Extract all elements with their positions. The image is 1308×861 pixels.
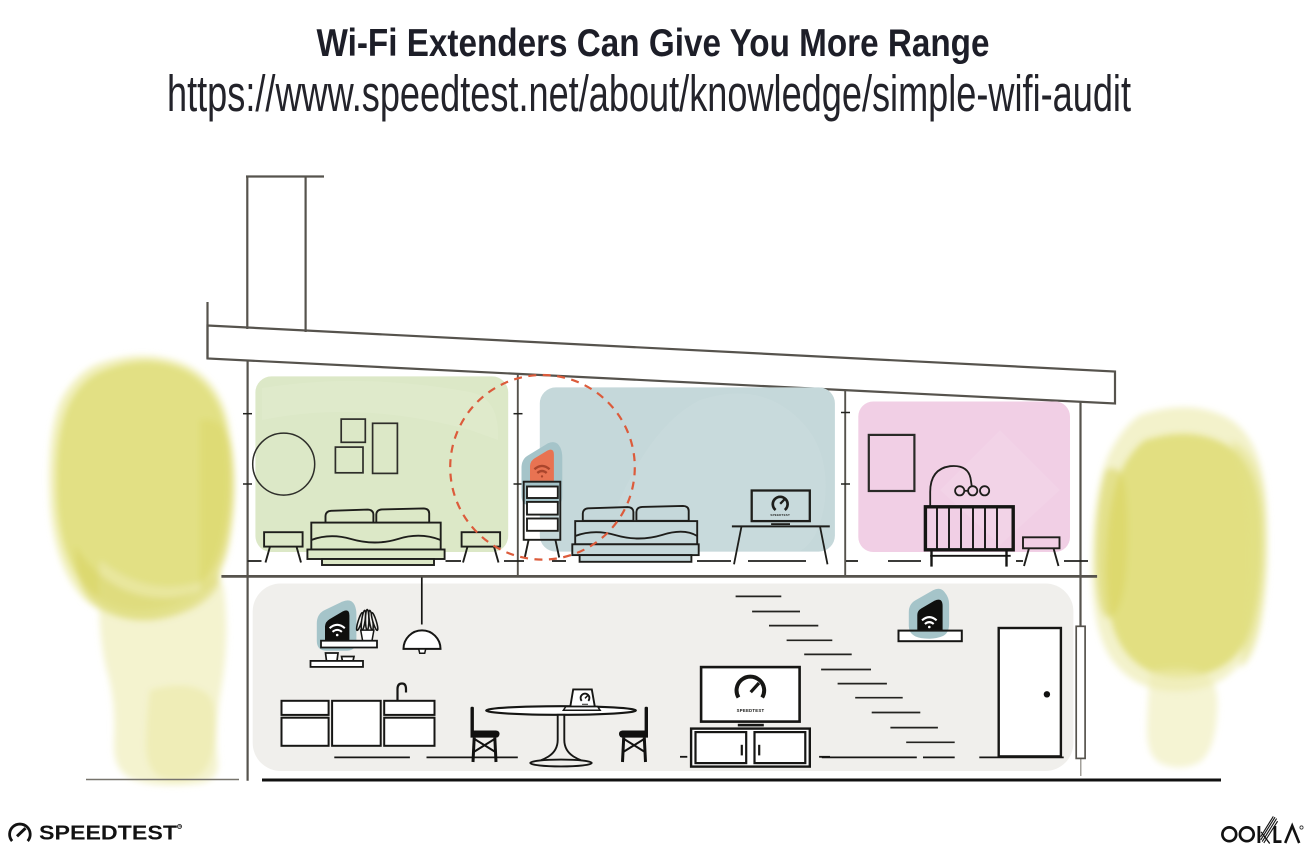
- svg-text:Wi-Fi Extenders Can Give You M: Wi-Fi Extenders Can Give You More Range: [317, 22, 990, 65]
- svg-text:SPEEDTEST: SPEEDTEST: [770, 513, 790, 517]
- svg-text:SPEEDTEST: SPEEDTEST: [737, 708, 765, 713]
- svg-text:SPEEDTEST: SPEEDTEST: [39, 823, 177, 845]
- svg-text:https://www.speedtest.net/abou: https://www.speedtest.net/about/knowledg…: [167, 65, 1131, 122]
